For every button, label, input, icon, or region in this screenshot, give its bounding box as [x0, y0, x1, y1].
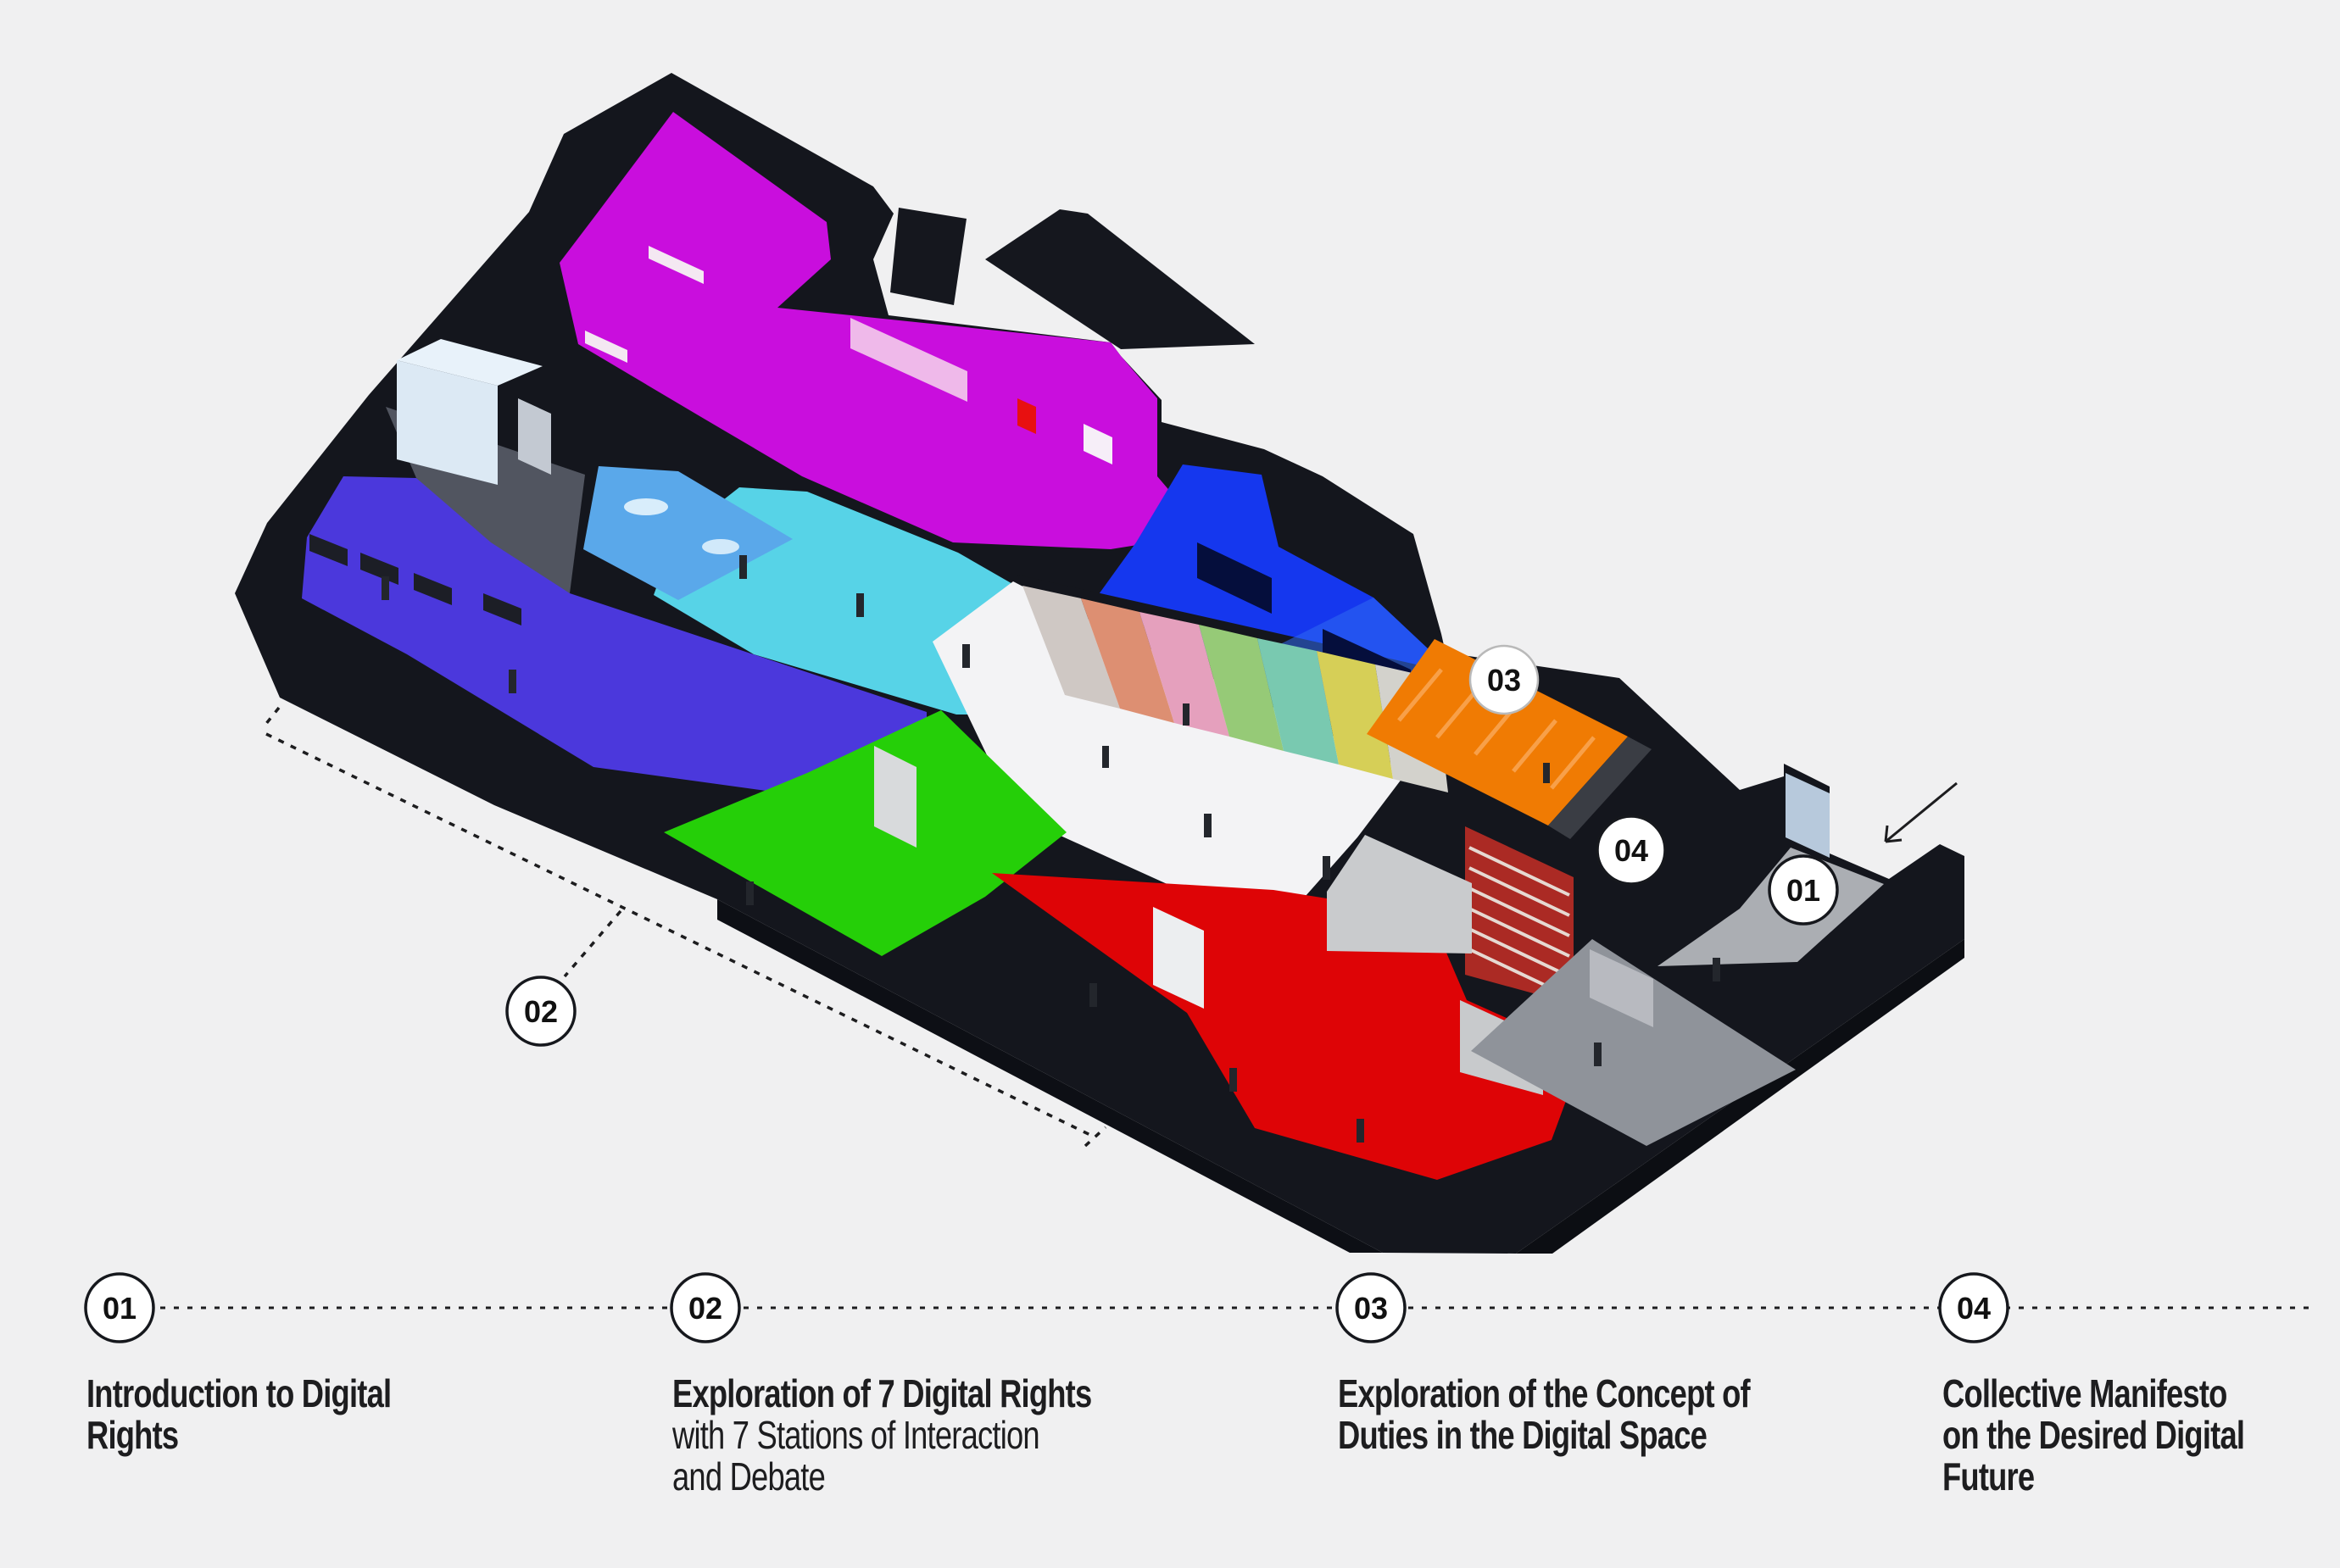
svg-text:04: 04: [1957, 1291, 1991, 1326]
svg-text:02: 02: [524, 994, 558, 1029]
svg-text:04: 04: [1614, 833, 1648, 868]
svg-text:01: 01: [103, 1291, 136, 1326]
svg-text:02: 02: [688, 1291, 722, 1326]
svg-text:03: 03: [1487, 663, 1521, 698]
svg-text:03: 03: [1354, 1291, 1388, 1326]
svg-text:01: 01: [1786, 873, 1820, 908]
